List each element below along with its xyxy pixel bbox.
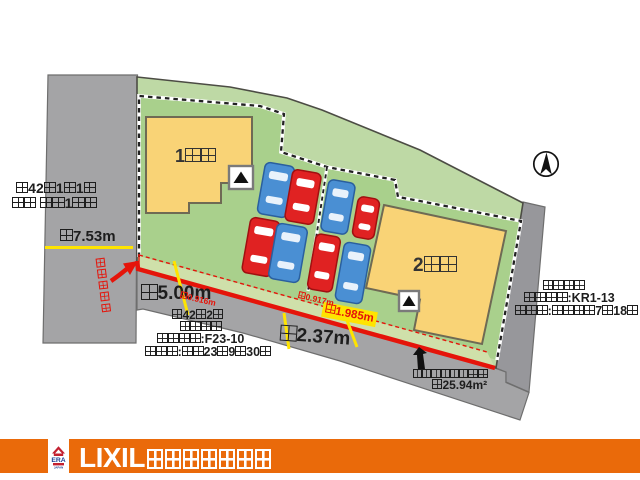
svg-text:JAPAN: JAPAN	[54, 466, 63, 470]
svg-text:ERA: ERA	[51, 457, 65, 464]
